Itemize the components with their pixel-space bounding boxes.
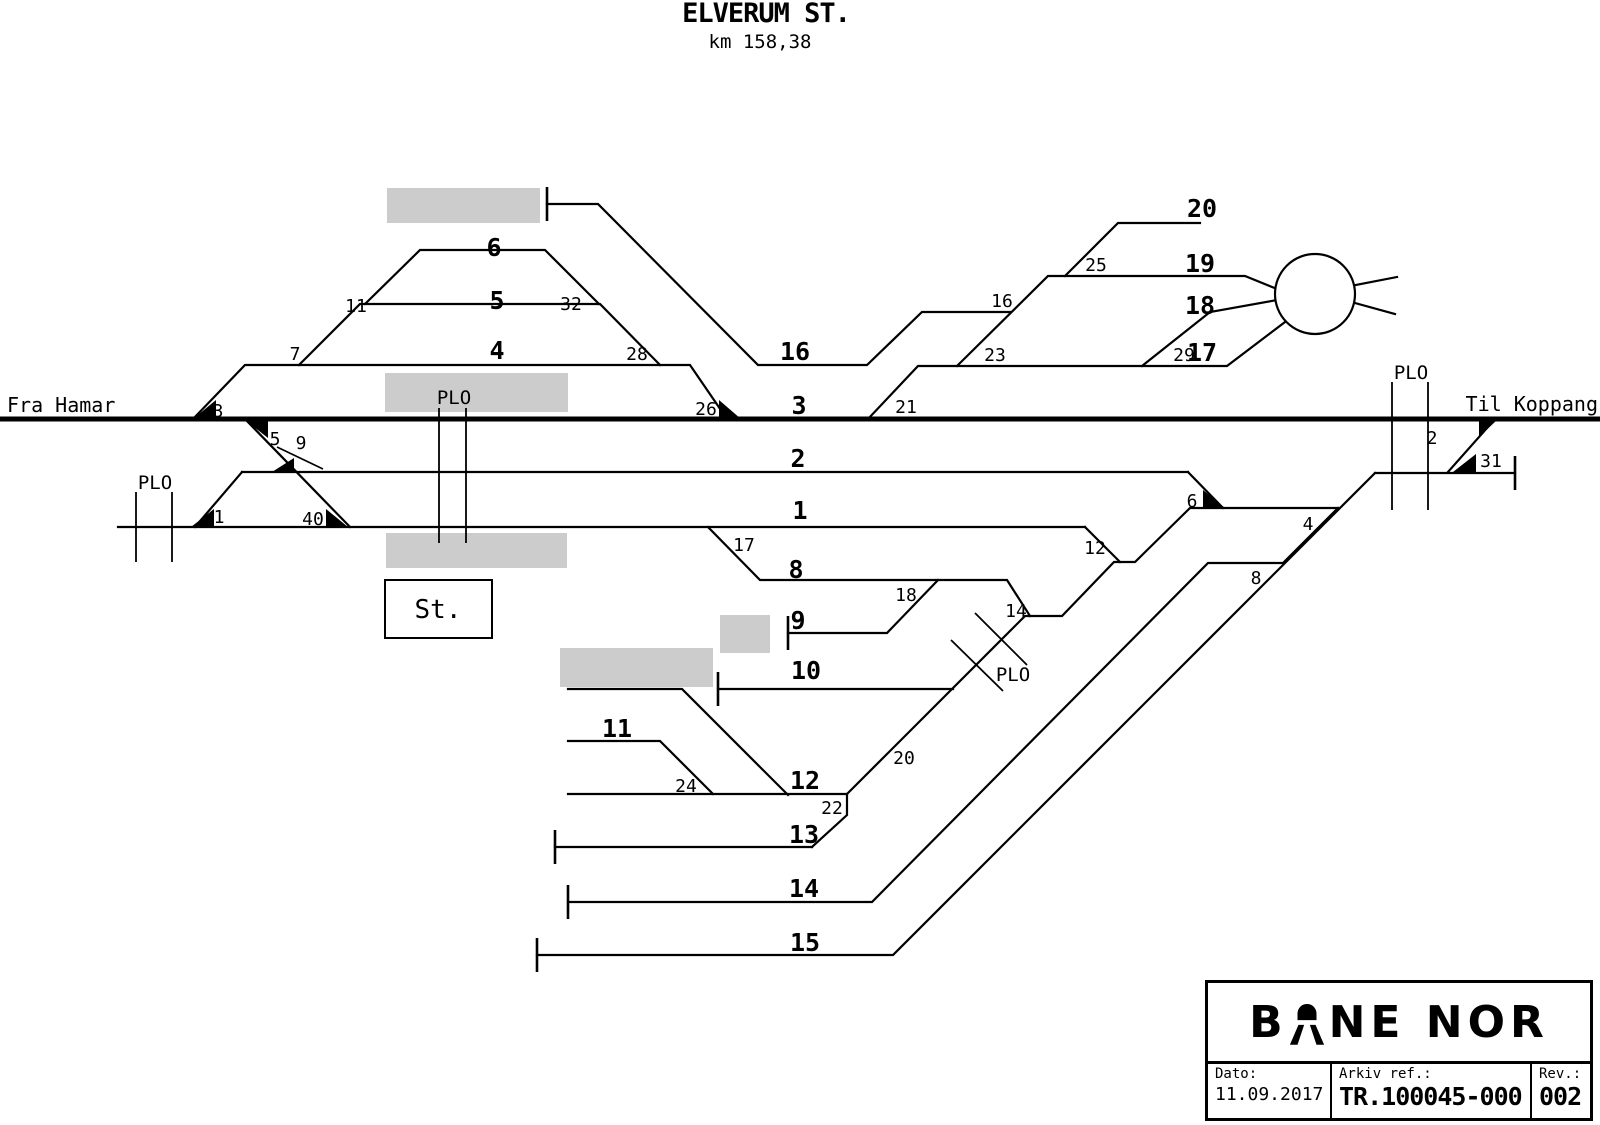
switch-indicator (191, 509, 214, 527)
switch-label-28: 28 (626, 344, 648, 365)
turntable-stub-line (1355, 303, 1395, 314)
plo-label: PLO (138, 472, 172, 494)
revision-cell: Rev.: 002 (1530, 1064, 1590, 1121)
track-16-line (547, 204, 1010, 365)
title-block-fields: Dato: 11.09.2017 Arkiv ref.: TR.100045-0… (1208, 1064, 1590, 1121)
buffer-stops (537, 187, 1515, 972)
track-label-18: 18 (1185, 291, 1215, 320)
direction-label-right: Til Koppang (1466, 392, 1598, 416)
archive-ref-label: Arkiv ref.: (1339, 1066, 1530, 1082)
logo-text-b: B (1249, 997, 1288, 1048)
revision-label: Rev.: (1539, 1066, 1590, 1082)
logo-text-nenor: NE NOR (1329, 997, 1549, 1048)
switch-label-16: 16 (991, 291, 1013, 312)
track-label-3: 3 (791, 391, 806, 420)
level-crossings (136, 382, 1428, 691)
track-label-1: 1 (792, 496, 807, 525)
station-building-label: St. (415, 595, 462, 625)
platform (720, 615, 770, 653)
switch-indicator (719, 400, 741, 419)
switch-label-31: 31 (1480, 451, 1502, 472)
page-title: ELVERUM ST. (682, 0, 850, 29)
plo-label: PLO (996, 664, 1030, 686)
track-14-line (568, 508, 1338, 902)
title-block: B NE NOR Dato: 11.09.2017 Arkiv ref.: TR… (1205, 980, 1593, 1121)
switch-label-7: 7 (290, 344, 301, 365)
platform (387, 188, 540, 223)
track-label-13: 13 (789, 820, 819, 849)
bane-nor-logo: B NE NOR (1208, 983, 1590, 1064)
track-label-19: 19 (1185, 249, 1215, 278)
track-8-line (708, 527, 1030, 616)
switch-label-3: 3 (213, 401, 224, 422)
switch-label-17: 17 (733, 535, 755, 556)
switch-label-18: 18 (895, 585, 917, 606)
switch-label-5: 5 (270, 429, 281, 450)
switch-label-25: 25 (1085, 255, 1107, 276)
switch-indicator (272, 458, 294, 472)
track-label-16: 16 (780, 337, 810, 366)
switch-indicator (326, 509, 348, 527)
switch-label-2: 2 (1427, 428, 1438, 449)
turntable (1275, 254, 1355, 334)
track-label-5: 5 (489, 286, 504, 315)
track-label-8: 8 (788, 555, 803, 584)
track-label-20: 20 (1187, 194, 1217, 223)
track-label-14: 14 (789, 874, 819, 903)
switch-label-9: 9 (296, 433, 307, 454)
switch-label-1: 1 (214, 507, 225, 528)
platform (386, 533, 567, 568)
bane-nor-a-icon (1288, 999, 1326, 1045)
track-label-12: 12 (790, 766, 820, 795)
switch-label-40: 40 (302, 509, 324, 530)
switch-label-8: 8 (1251, 568, 1262, 589)
switch-label-24: 24 (675, 776, 697, 797)
track-label-11: 11 (602, 714, 632, 743)
platform (385, 373, 568, 412)
date-value: 11.09.2017 (1215, 1082, 1330, 1108)
archive-ref-cell: Arkiv ref.: TR.100045-000 (1330, 1064, 1530, 1121)
station-schematic-page: ELVERUM ST. km 158,38 Fra Hamar Til Kopp… (0, 0, 1600, 1125)
switch-label-4: 4 (1303, 514, 1314, 535)
plo-label: PLO (1394, 362, 1428, 384)
track-label-6: 6 (486, 233, 501, 262)
direction-label-left: Fra Hamar (7, 393, 115, 417)
plo-label: PLO (437, 387, 471, 409)
turntable-stub-line (1356, 277, 1397, 285)
switch-label-26: 26 (695, 399, 717, 420)
switch-label-6: 6 (1187, 491, 1198, 512)
track-17-line (868, 322, 1285, 419)
switch-label-22: 22 (821, 798, 843, 819)
platform (560, 648, 713, 687)
switch-label-32: 32 (560, 294, 582, 315)
switch-label-11: 11 (345, 296, 367, 317)
switch-label-14: 14 (1005, 601, 1027, 622)
page-subtitle: km 158,38 (709, 31, 812, 53)
track-15-line (537, 473, 1375, 955)
switch-label-20: 20 (893, 748, 915, 769)
track-label-9: 9 (790, 606, 805, 635)
switch-indicator (1203, 490, 1225, 508)
date-label: Dato: (1215, 1066, 1330, 1082)
archive-ref-value: TR.100045-000 (1339, 1082, 1530, 1112)
track-label-2: 2 (790, 444, 805, 473)
switch-label-29: 29 (1173, 345, 1195, 366)
track-diagram: ELVERUM ST. km 158,38 Fra Hamar Til Kopp… (0, 0, 1600, 1125)
revision-value: 002 (1539, 1082, 1590, 1112)
track-label-15: 15 (790, 928, 820, 957)
switch-label-12: 12 (1084, 538, 1106, 559)
switch-label-21: 21 (895, 397, 917, 418)
switch-indicator (1479, 420, 1497, 437)
track-label-4: 4 (489, 336, 504, 365)
track-label-10: 10 (791, 656, 821, 685)
date-cell: Dato: 11.09.2017 (1208, 1064, 1330, 1121)
switch-label-23: 23 (984, 345, 1006, 366)
